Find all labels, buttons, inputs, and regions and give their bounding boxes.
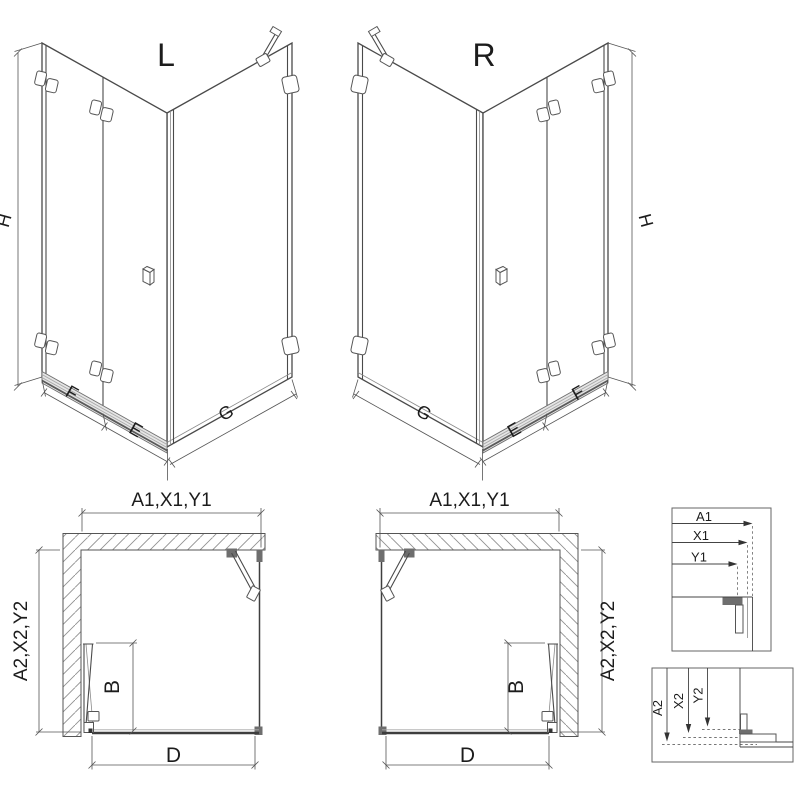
detail-width-label-x1: X1 (693, 528, 709, 543)
plan-geometry-right (376, 508, 606, 770)
plan-right-view: A1,X1,Y1 A2,X2,Y2 B D (376, 490, 619, 770)
iso-left-title: L (157, 37, 175, 73)
plan-right-dim-reach-label: B (505, 680, 528, 694)
detail-box-depth: A2 X2 Y2 (650, 668, 793, 762)
plan-left-dim-width-label: A1,X1,Y1 (131, 490, 211, 511)
plan-right-dim-depth-label: A2,X2,Y2 (598, 601, 619, 681)
iso-right-view: R H F E G (350, 27, 657, 481)
technical-diagram-page: L H F E G R H F E G A1,X1,Y1 A2,X2,Y2 B … (0, 0, 800, 800)
iso-left-view: L H F E G (0, 27, 300, 481)
detail-depth-label-a2: A2 (650, 700, 665, 716)
detail-depth-label-y2: Y2 (691, 688, 706, 704)
iso-geometry-right (350, 27, 636, 481)
plan-geometry-left (36, 508, 266, 770)
iso-left-dim-height-label: H (0, 212, 16, 230)
iso-right-dim-height-label: H (634, 212, 657, 230)
detail-width-label-a1: A1 (696, 509, 712, 524)
plan-right-dim-width-label: A1,X1,Y1 (429, 490, 509, 511)
iso-right-title: R (472, 37, 495, 73)
detail-depth-label-x2: X2 (671, 693, 686, 709)
plan-left-dim-reach-label: B (101, 680, 124, 694)
plan-left-dim-depth-label: A2,X2,Y2 (11, 601, 32, 681)
plan-left-dim-entry-label: D (166, 744, 181, 767)
wall-profile-section (723, 598, 743, 606)
plan-right-dim-entry-label: D (460, 744, 475, 767)
plan-left-view: A1,X1,Y1 A2,X2,Y2 B D (11, 490, 265, 770)
detail-width-label-y1: Y1 (691, 550, 707, 565)
sill-profile-section (739, 730, 753, 735)
diagram-canvas: L H F E G R H F E G A1,X1,Y1 A2,X2,Y2 B … (0, 0, 800, 800)
detail-box-width: A1 X1 Y1 (672, 508, 771, 651)
iso-geometry-left (14, 27, 300, 481)
